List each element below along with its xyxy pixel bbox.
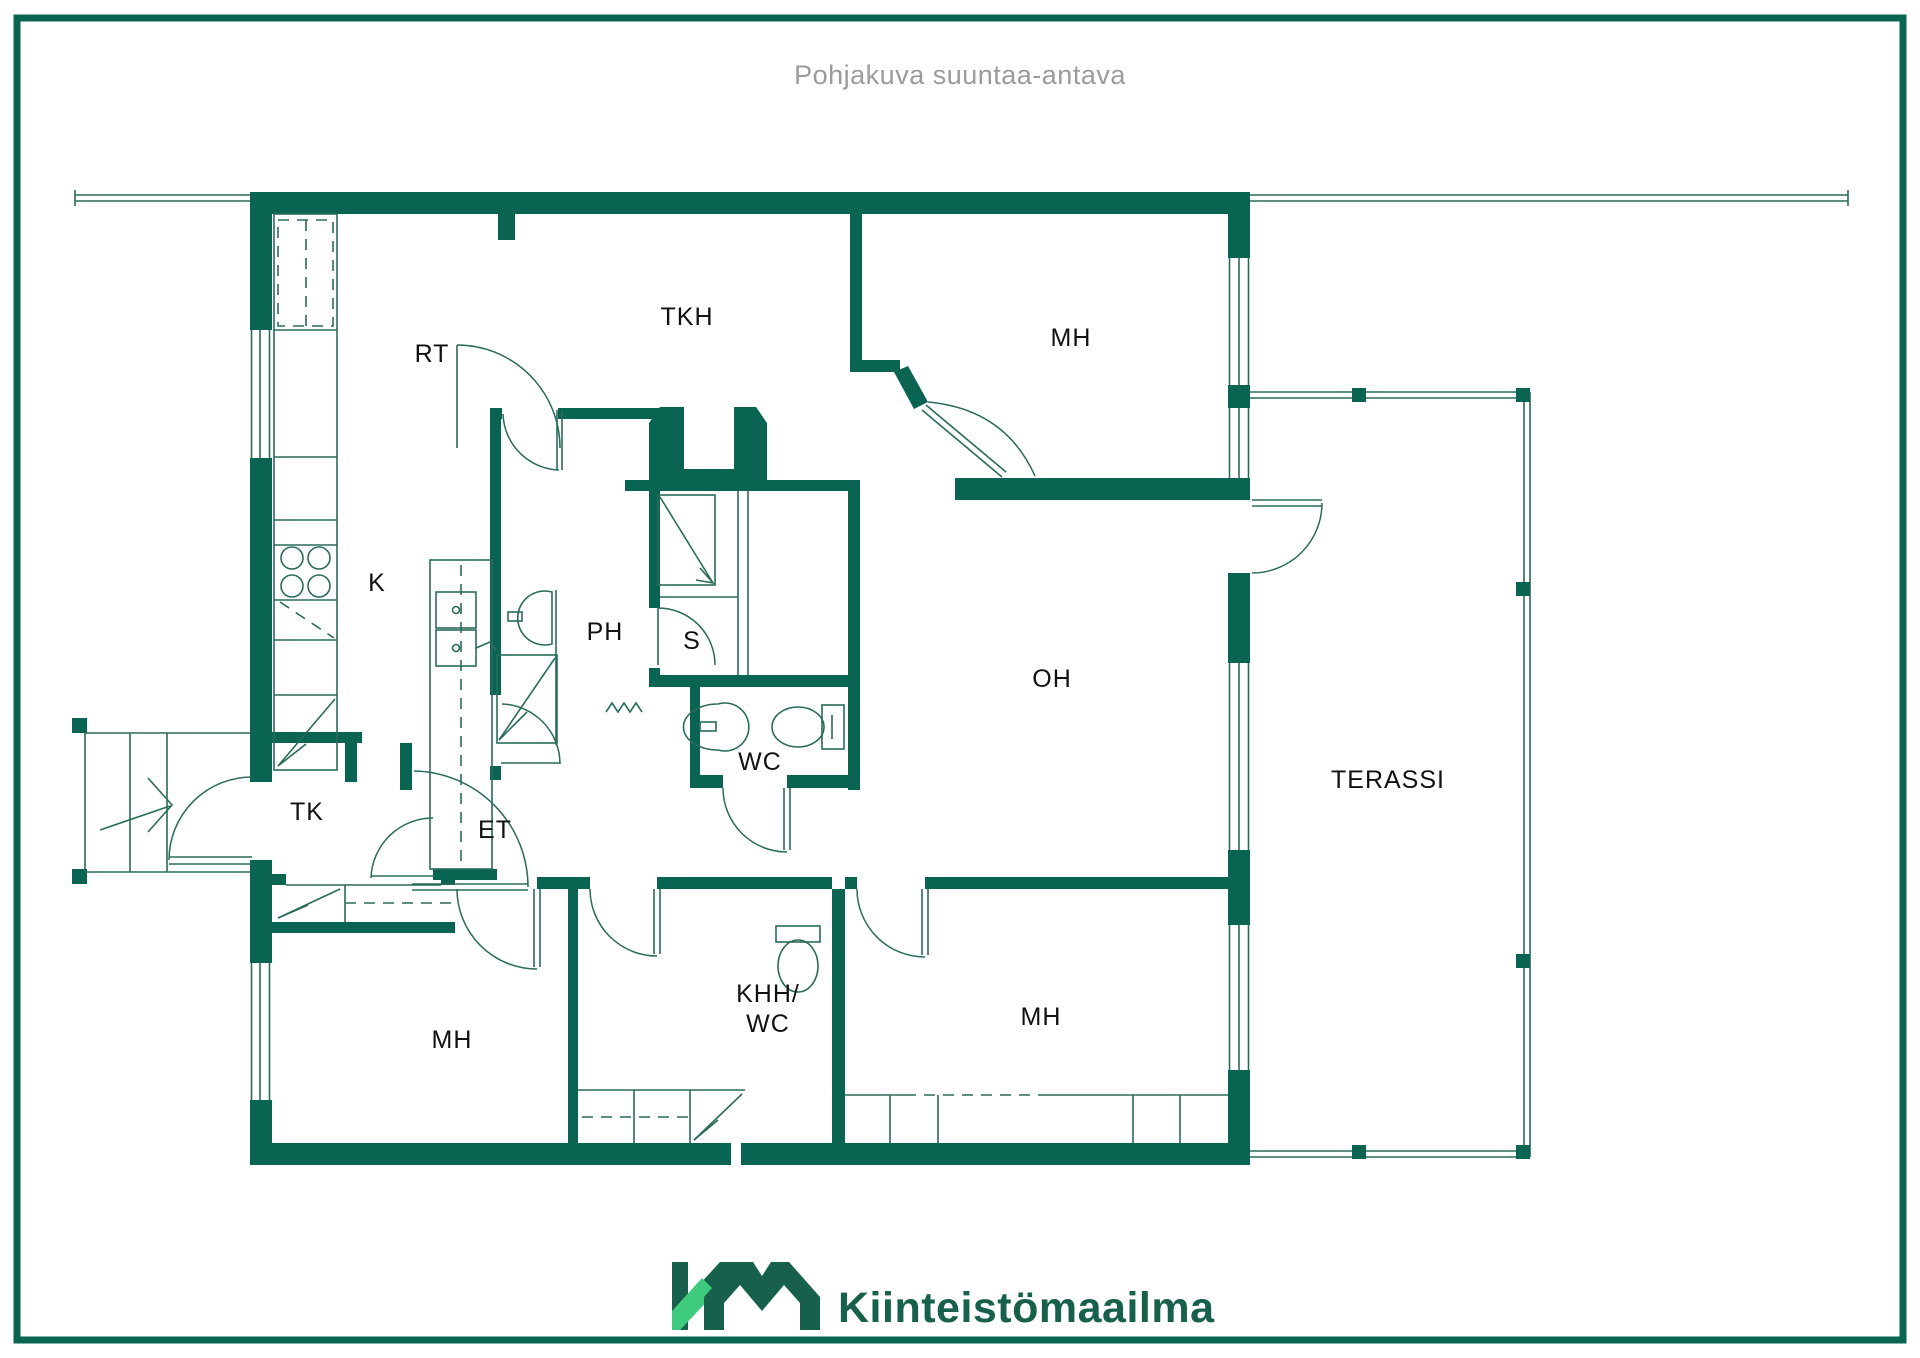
terrace-post [1516, 582, 1530, 596]
room-label-et: ET [478, 816, 512, 844]
plan-disclaimer: Pohjakuva suuntaa-antava [794, 60, 1126, 90]
terrace-post [1516, 388, 1530, 402]
washer-icon [497, 655, 557, 743]
room-label-wc: WC [738, 748, 782, 776]
wc-toilet-icon [772, 705, 844, 749]
window-right-1 [1230, 258, 1249, 385]
room-label-khh-wc: KHH/WC [736, 980, 800, 1038]
stove-icon [281, 547, 330, 597]
terrace-post [1516, 954, 1530, 968]
mh-closet [845, 1095, 1228, 1143]
window-right-4 [1230, 925, 1249, 1070]
fridge-icon [278, 220, 333, 326]
room-label-mh-br: MH [1021, 1003, 1062, 1031]
window-right-2 [1230, 408, 1249, 478]
floorplan-page: Pohjakuva suuntaa-antava [0, 0, 1920, 1358]
room-label-tkh: TKH [661, 303, 714, 331]
room-label-k: K [368, 569, 386, 597]
porch-post [72, 718, 87, 733]
room-labels: RTTKHMHKPHSOHWCTKETTERASSIKHH/WCMHMH [290, 303, 1445, 1054]
room-label-mh-top: MH [1051, 324, 1092, 352]
room-label-mh-bl: MH [432, 1026, 473, 1054]
kitchen-counter [274, 214, 337, 770]
page-border [17, 18, 1903, 1340]
terrace-post [1352, 388, 1366, 402]
window-left-1 [252, 330, 270, 458]
floorplan-svg: Pohjakuva suuntaa-antava [0, 0, 1920, 1358]
room-label-oh: OH [1032, 665, 1072, 693]
stairs-direction-arrow [100, 778, 172, 832]
terrace-post [1516, 1145, 1530, 1159]
km-logo-icon [672, 1262, 820, 1330]
terrace-post [1352, 1145, 1366, 1159]
sauna-benches [658, 491, 748, 675]
km-logo: Kiinteistömaailma [672, 1262, 1215, 1332]
room-label-rt: RT [415, 340, 450, 368]
km-logo-text: Kiinteistömaailma [838, 1284, 1215, 1332]
khh-counter [578, 1090, 745, 1143]
room-label-terassi: TERASSI [1331, 766, 1445, 794]
room-label-tk: TK [290, 798, 324, 826]
window-left-2 [252, 963, 270, 1100]
window-right-3 [1230, 663, 1249, 850]
room-label-s: S [683, 627, 701, 655]
room-label-ph: PH [587, 618, 624, 646]
porch-stairs [72, 718, 250, 884]
